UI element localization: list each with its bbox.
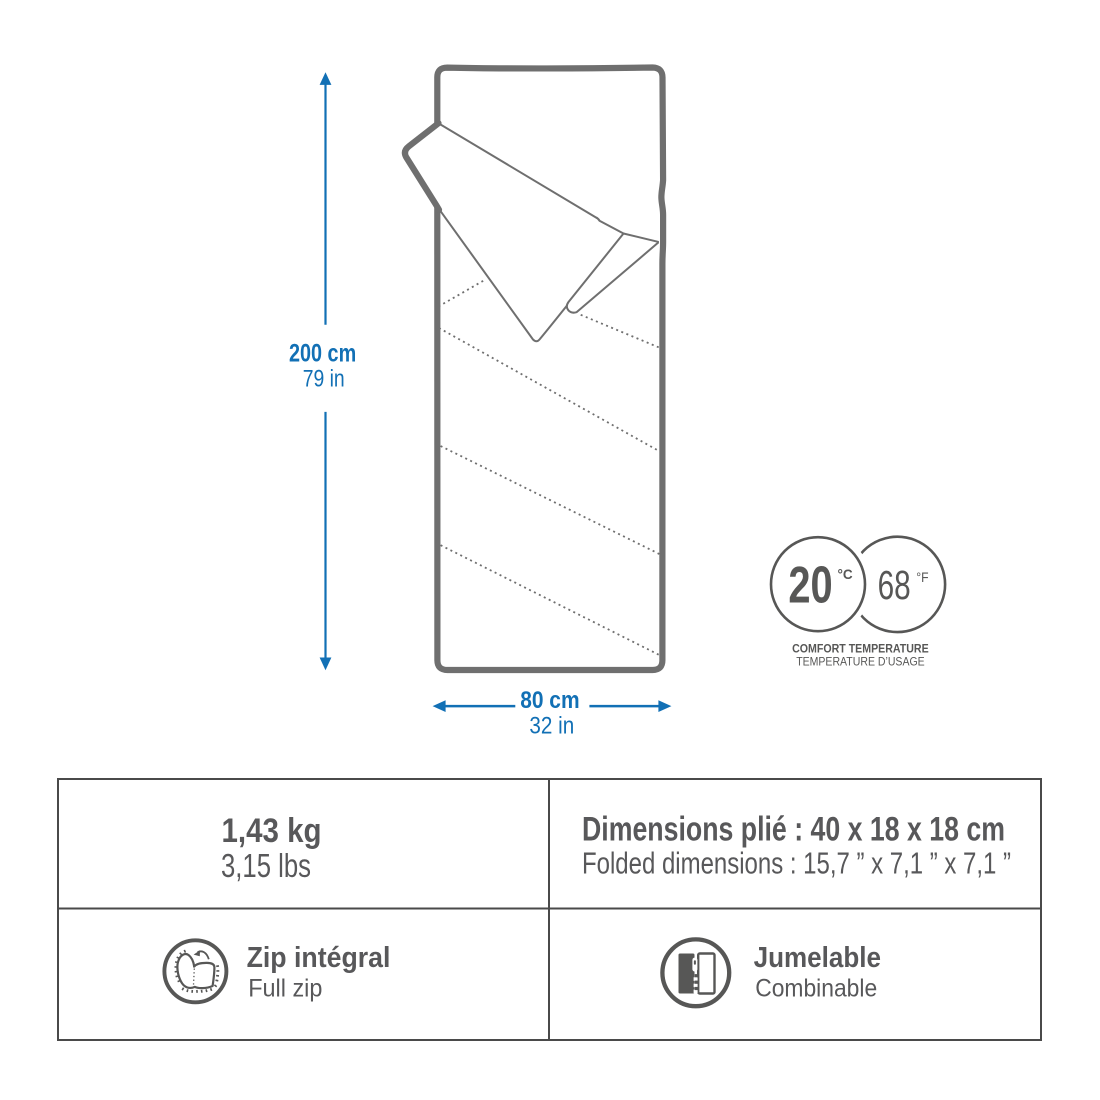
svg-text:Combinable: Combinable	[755, 974, 877, 1002]
svg-text:Jumelable: Jumelable	[754, 942, 881, 974]
svg-text:Folded dimensions : 15,7 ” x 7: Folded dimensions : 15,7 ” x 7,1 ” x 7,1…	[582, 845, 1011, 880]
svg-text:79 in: 79 in	[303, 366, 345, 393]
svg-text:20: 20	[788, 556, 832, 614]
svg-text:200 cm: 200 cm	[289, 340, 356, 368]
svg-text:°F: °F	[916, 570, 928, 585]
svg-text:Full zip: Full zip	[248, 974, 322, 1002]
svg-text:68: 68	[878, 562, 911, 608]
svg-text:COMFORT TEMPERATURE: COMFORT TEMPERATURE	[792, 644, 929, 656]
svg-text:°C: °C	[838, 567, 853, 582]
svg-text:Zip intégral: Zip intégral	[247, 942, 391, 974]
svg-text:Dimensions plié : 40 x 18 x 18: Dimensions plié : 40 x 18 x 18 cm	[582, 810, 1005, 848]
svg-text:32 in: 32 in	[529, 713, 574, 740]
svg-text:3,15 lbs: 3,15 lbs	[221, 847, 311, 884]
svg-text:1,43 kg: 1,43 kg	[222, 812, 322, 850]
svg-text:80 cm: 80 cm	[520, 687, 579, 714]
svg-text:TEMPERATURE D’USAGE: TEMPERATURE D’USAGE	[796, 656, 925, 668]
